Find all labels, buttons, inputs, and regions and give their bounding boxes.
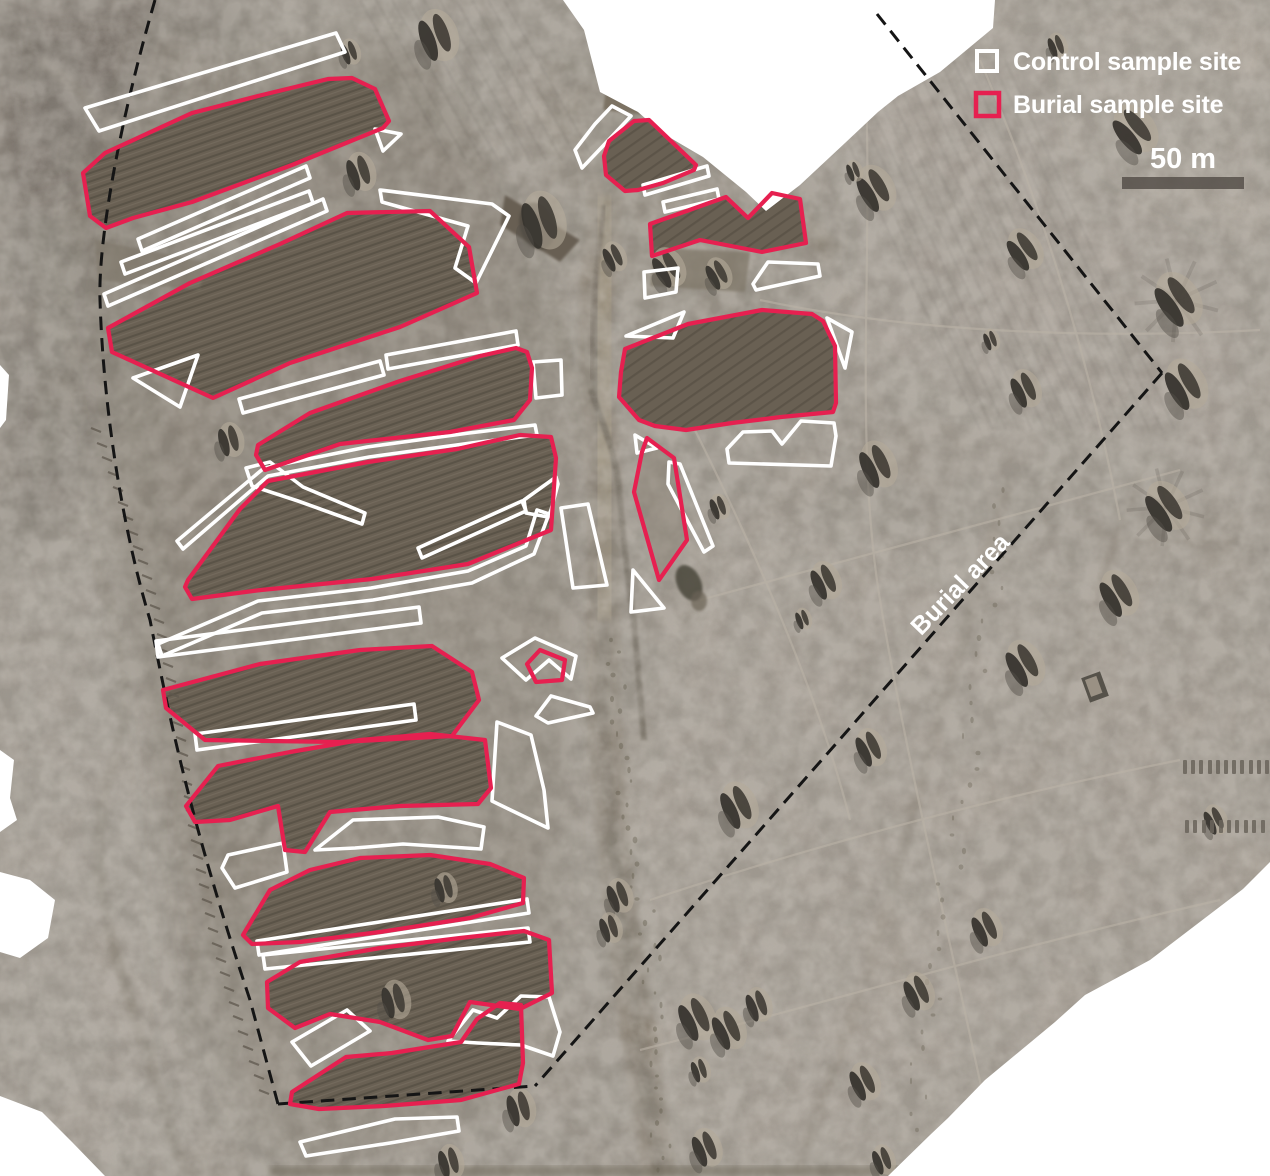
svg-text:Burial sample site: Burial sample site xyxy=(1013,91,1224,119)
svg-text:50 m: 50 m xyxy=(1150,143,1216,175)
svg-text:Control sample site: Control sample site xyxy=(1013,48,1241,76)
